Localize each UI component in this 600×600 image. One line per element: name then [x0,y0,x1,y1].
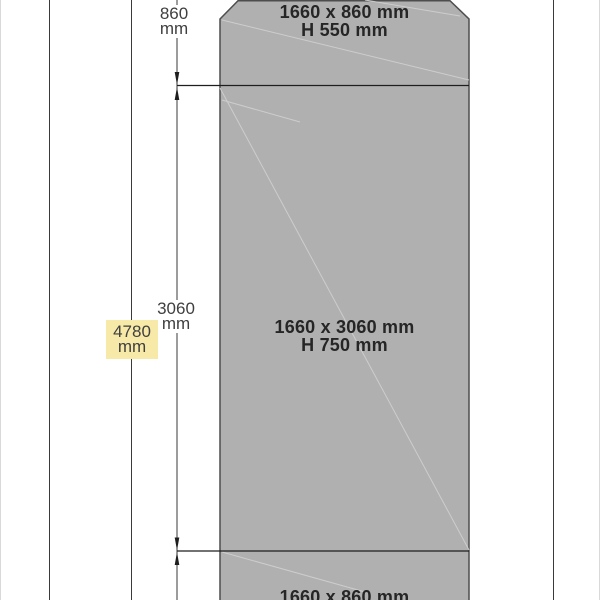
section-1-height: H 550 mm [220,22,469,40]
section-1-size: 1660 x 860 mm [220,4,469,22]
dim-label-4780-highlighted: 4780 mm [106,320,158,359]
dim-label-860: 860 mm [148,5,200,38]
section-1-label: 1660 x 860 mm H 550 mm [220,4,469,39]
section-2-height: H 750 mm [220,337,469,355]
cover-panel-shape [220,1,469,600]
dim-860-unit: mm [148,21,200,36]
section-2-size: 1660 x 3060 mm [220,319,469,337]
cover-drawing-svg [0,0,600,600]
dim-4780-unit: mm [106,339,158,354]
section-2-label: 1660 x 3060 mm H 750 mm [220,319,469,354]
section-3-size: 1660 x 860 mm [220,589,469,600]
dimension-diagram: 1660 x 860 mm H 550 mm 1660 x 3060 mm H … [0,0,600,600]
section-3-label: 1660 x 860 mm [220,589,469,600]
